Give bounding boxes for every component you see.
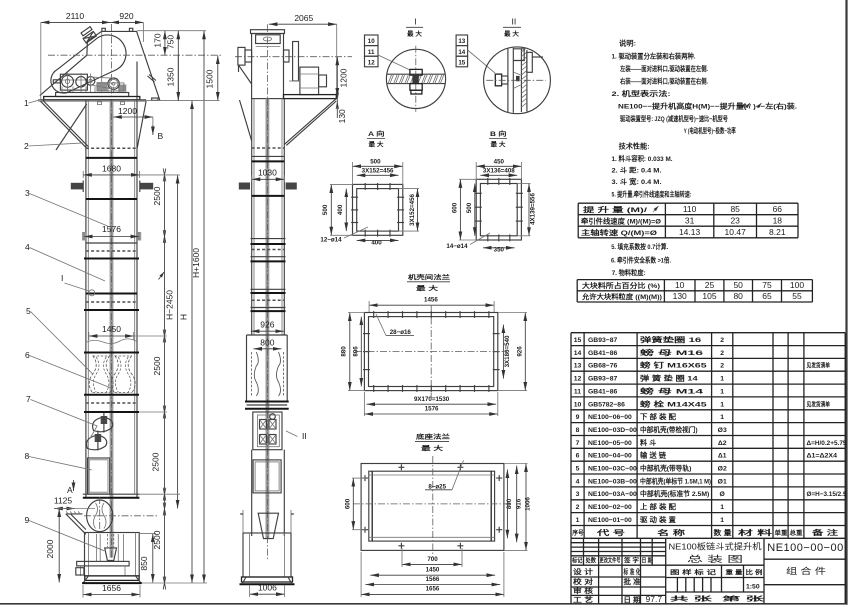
svg-text:12−ø14: 12−ø14 [320, 237, 342, 244]
svg-text:中部机壳(带导轨): 中部机壳(带导轨) [640, 464, 691, 473]
svg-text:3X180=540: 3X180=540 [504, 335, 511, 367]
svg-text:7: 7 [576, 440, 580, 447]
svg-text:名 称: 名 称 [657, 528, 685, 537]
svg-text:校 对: 校 对 [573, 577, 593, 586]
svg-text:500: 500 [322, 204, 329, 215]
svg-text:Δ2: Δ2 [718, 440, 727, 447]
svg-text:见发货清单: 见发货清单 [807, 362, 831, 370]
svg-text:28−ø16: 28−ø16 [390, 329, 412, 336]
svg-text:10: 10 [368, 38, 375, 45]
svg-text:GB93−87: GB93−87 [588, 376, 618, 383]
svg-text:单重: 单重 [775, 529, 789, 537]
svg-text:螃 母 M16: 螃 母 M16 [640, 348, 703, 357]
svg-text:NE100−04−00: NE100−04−00 [588, 453, 632, 460]
svg-text:1576: 1576 [102, 224, 121, 234]
svg-text:2500: 2500 [152, 186, 162, 205]
svg-text:1: 1 [720, 504, 724, 511]
svg-text:3X152=456: 3X152=456 [362, 167, 394, 174]
svg-text:上 部 装 配: 上 部 装 配 [640, 502, 676, 511]
svg-text:牵引件线速度 (M)/(M)=Ø: 牵引件线速度 (M)/(M)=Ø [581, 216, 661, 225]
svg-text:见发货清单: 见发货清单 [807, 400, 831, 408]
svg-text:大块料所占百分比 (%): 大块料所占百分比 (%) [582, 281, 660, 290]
svg-text:1: 1 [576, 517, 580, 524]
svg-text:中部机壳(单标节 1.5M,1 M): 中部机壳(单标节 1.5M,1 M) [640, 476, 711, 485]
svg-text:Ø: Ø [720, 491, 725, 498]
svg-text:5: 5 [26, 306, 31, 316]
svg-text:1656: 1656 [102, 583, 121, 593]
svg-text:料 斗: 料 斗 [640, 438, 656, 447]
svg-text:标记: 标记 [571, 556, 583, 564]
svg-text:B 向: B 向 [490, 130, 507, 138]
svg-text:85: 85 [730, 204, 740, 214]
svg-text:更改文件号: 更改文件号 [600, 556, 621, 564]
svg-text:2500: 2500 [151, 452, 161, 471]
svg-text:Δ1=Δ2X4: Δ1=Δ2X4 [807, 453, 838, 460]
svg-text:2500: 2500 [152, 356, 162, 375]
svg-text:A: A [67, 485, 73, 495]
svg-text:6: 6 [576, 453, 580, 460]
svg-text:材 料: 材 料 [738, 528, 772, 537]
svg-text:Y (电动机型号)−极数−功率: Y (电动机型号)−极数−功率 [684, 126, 736, 135]
svg-text:螃 母 M14: 螃 母 M14 [640, 386, 703, 395]
svg-text:II: II [302, 431, 307, 441]
svg-text:2000: 2000 [45, 539, 55, 558]
svg-text:4: 4 [25, 242, 30, 252]
svg-text:14: 14 [574, 350, 582, 357]
svg-text:8.21: 8.21 [769, 227, 786, 237]
svg-text:中部机壳(标准节 2.5M): 中部机壳(标准节 2.5M) [640, 489, 709, 498]
svg-text:13: 13 [458, 38, 465, 45]
svg-text:GB41−86: GB41−86 [588, 388, 618, 395]
svg-text:1:50: 1:50 [746, 584, 760, 591]
svg-text:日 期: 日 期 [624, 595, 641, 604]
svg-text:工 艺: 工 艺 [573, 595, 593, 604]
svg-text:80: 80 [733, 291, 743, 301]
svg-text:NE100−00−00: NE100−00−00 [767, 542, 843, 554]
svg-text:图 样 标 记: 图 样 标 记 [670, 568, 717, 576]
svg-text:15: 15 [574, 337, 582, 344]
svg-text:2: 2 [576, 504, 580, 511]
svg-text:1450: 1450 [426, 567, 440, 574]
svg-text:H: H [179, 314, 189, 320]
svg-text:1: 1 [720, 388, 724, 395]
svg-text:2500: 2500 [152, 530, 162, 549]
svg-text:110: 110 [683, 204, 697, 214]
svg-text:II: II [512, 17, 517, 27]
svg-text:1. 料斗容积: 0.033 M.: 1. 料斗容积: 0.033 M. [612, 154, 673, 163]
svg-text:H+1600: H+1600 [191, 248, 201, 278]
svg-text:最 大: 最 大 [369, 141, 385, 149]
svg-text:Δ1: Δ1 [718, 453, 727, 460]
svg-text:1456: 1456 [424, 297, 438, 304]
svg-text:主轴转速 Q/(M)=Ø: 主轴转速 Q/(M)=Ø [581, 228, 657, 237]
svg-text:机壳间法兰: 机壳间法兰 [408, 274, 450, 282]
svg-text:螃 钉 M16X65: 螃 钉 M16X65 [640, 361, 707, 370]
svg-text:1500: 1500 [205, 69, 215, 88]
svg-text:750: 750 [166, 35, 176, 49]
svg-text:700: 700 [427, 556, 438, 563]
svg-text:最 大: 最 大 [407, 30, 423, 38]
svg-text:数 量: 数 量 [714, 528, 732, 537]
svg-text:Ø3: Ø3 [718, 427, 727, 434]
svg-text:标 准 化: 标 准 化 [623, 567, 641, 576]
svg-text:Ø2: Ø2 [718, 466, 727, 473]
svg-text:3X152=456: 3X152=456 [409, 193, 416, 225]
svg-text:11: 11 [574, 388, 581, 395]
svg-text:130: 130 [673, 291, 687, 301]
svg-text:1200: 1200 [118, 106, 137, 116]
svg-text:组 合 件: 组 合 件 [786, 566, 827, 576]
svg-text:NE100−03A−00: NE100−03A−00 [588, 491, 637, 498]
svg-text:170: 170 [153, 33, 163, 47]
svg-text:GB93−87: GB93−87 [588, 337, 618, 344]
svg-text:23: 23 [730, 215, 740, 225]
svg-text:右装——面对进料口,驱动装置在右侧.: 右装——面对进料口,驱动装置在右侧. [619, 77, 708, 86]
svg-text:50: 50 [733, 280, 743, 290]
svg-text:1030: 1030 [258, 168, 277, 178]
svg-text:2065: 2065 [294, 13, 313, 23]
svg-text:日 期: 日 期 [642, 556, 653, 564]
svg-text:底座法兰: 底座法兰 [416, 433, 450, 441]
svg-text:NE100−01−00: NE100−01−00 [588, 517, 632, 524]
svg-text:7. 物料粒度:: 7. 物料粒度: [612, 268, 646, 277]
svg-text:说明:: 说明: [619, 39, 636, 48]
svg-text:Δ=H/0.2+5.75: Δ=H/0.2+5.75 [807, 440, 848, 447]
svg-text:NE100−02−00: NE100−02−00 [588, 504, 632, 511]
svg-text:31: 31 [685, 215, 695, 225]
svg-text:审 核: 审 核 [573, 586, 593, 595]
svg-text:1006: 1006 [258, 583, 277, 593]
svg-text:4: 4 [576, 478, 580, 485]
svg-text:设 计: 设 计 [573, 567, 593, 576]
svg-text:序号: 序号 [571, 529, 583, 537]
svg-text:1576: 1576 [425, 406, 439, 413]
svg-text:重 量: 重 量 [726, 568, 744, 576]
svg-text:最 大: 最 大 [491, 141, 507, 149]
svg-text:1: 1 [24, 98, 29, 108]
svg-text:总 装 图: 总 装 图 [687, 554, 743, 564]
svg-text:12: 12 [368, 59, 375, 66]
svg-text:2: 2 [720, 337, 724, 344]
svg-text:9X170=1530: 9X170=1530 [414, 396, 450, 403]
svg-text:弹 簧 垫 圈 14: 弹 簧 垫 圈 14 [640, 374, 698, 383]
svg-text:最 大: 最 大 [504, 30, 520, 38]
svg-text:I: I [414, 17, 416, 27]
svg-text:A 向: A 向 [368, 130, 385, 138]
svg-text:I: I [61, 273, 63, 283]
svg-text:850: 850 [139, 556, 149, 570]
svg-text:97.7: 97.7 [646, 594, 663, 604]
svg-text:130: 130 [337, 109, 347, 123]
svg-text:1450: 1450 [102, 324, 121, 334]
svg-text:105: 105 [702, 291, 716, 301]
svg-text:3: 3 [576, 491, 580, 498]
svg-text:中部机壳(带检视门): 中部机壳(带检视门) [640, 425, 698, 434]
svg-text:14: 14 [458, 49, 465, 56]
svg-text:920: 920 [119, 11, 133, 21]
svg-text:5. 提升量,牵引件线速度和主轴转速:: 5. 提升量,牵引件线速度和主轴转速: [612, 190, 692, 199]
svg-text:GB41−86: GB41−86 [588, 350, 618, 357]
svg-text:66: 66 [773, 204, 783, 214]
svg-text:9: 9 [576, 414, 580, 421]
svg-text:5: 5 [576, 466, 580, 473]
svg-text:800: 800 [260, 337, 274, 347]
svg-text:处数: 处数 [585, 556, 597, 564]
svg-text:9: 9 [25, 515, 30, 525]
svg-text:3X136=408: 3X136=408 [483, 167, 515, 174]
svg-text:13: 13 [574, 363, 582, 370]
svg-text:技术性能:: 技术性能: [619, 142, 650, 151]
svg-text:600: 600 [452, 202, 459, 213]
svg-text:55: 55 [792, 291, 802, 301]
svg-text:驱 动 装 置: 驱 动 装 置 [640, 515, 676, 524]
svg-text:1350: 1350 [166, 67, 176, 86]
svg-text:最 大: 最 大 [421, 444, 444, 452]
svg-text:Ø1: Ø1 [718, 478, 727, 485]
svg-text:NE100−−提升机高度H(M)−−提升量( /: NE100−−提升机高度H(M)−−提升量( / )−−左(右)装. [618, 102, 797, 111]
svg-text:比 例: 比 例 [746, 568, 763, 576]
svg-text:65: 65 [762, 291, 772, 301]
svg-text:1: 1 [720, 414, 724, 421]
svg-text:1566: 1566 [426, 576, 440, 583]
svg-text:弹簧垫圈 16: 弹簧垫圈 16 [640, 335, 702, 344]
svg-text:NE100板链斗式提升机: NE100板链斗式提升机 [669, 542, 763, 552]
svg-text:2. 机型表示法:: 2. 机型表示法: [612, 89, 671, 98]
svg-text:2: 2 [24, 141, 29, 151]
svg-text:500: 500 [466, 202, 473, 213]
svg-text:3. 斗 宽: 0.4 M.: 3. 斗 宽: 0.4 M. [612, 177, 662, 186]
svg-text:500: 500 [370, 158, 381, 165]
svg-text:7: 7 [26, 394, 31, 404]
svg-text:15: 15 [458, 59, 465, 66]
svg-text:H−2450: H−2450 [165, 290, 175, 320]
svg-text:1200: 1200 [339, 68, 349, 87]
svg-text:14.13: 14.13 [679, 227, 701, 237]
svg-text:5. 填充系数按 0.7计算.: 5. 填充系数按 0.7计算. [611, 242, 668, 251]
svg-text:8−ø25: 8−ø25 [428, 483, 446, 490]
svg-text:100: 100 [790, 280, 804, 290]
svg-text:1125: 1125 [54, 496, 73, 506]
svg-text:NE100−03B−00: NE100−03B−00 [588, 478, 637, 485]
svg-text:最 大: 最 大 [416, 285, 439, 293]
svg-text:18: 18 [773, 215, 783, 225]
svg-text:926: 926 [517, 346, 524, 357]
svg-text:880: 880 [341, 346, 348, 357]
svg-text:下 部 装 配: 下 部 装 配 [640, 412, 676, 421]
svg-text:1: 1 [720, 517, 724, 524]
svg-text:共 张: 共 张 [670, 595, 714, 603]
svg-text:2110: 2110 [66, 11, 85, 21]
svg-text:提 升 量 (M)/: 提 升 量 (M)/ [581, 205, 647, 214]
svg-text:驱动装置型号: JZQ (减速机型号)−速比−机型号: 驱动装置型号: JZQ (减速机型号)−速比−机型号 [620, 114, 728, 123]
svg-text:2: 2 [720, 363, 724, 370]
svg-text:GB68−76: GB68−76 [588, 363, 618, 370]
svg-text:25: 25 [705, 280, 715, 290]
svg-text:备 注: 备 注 [810, 528, 838, 537]
svg-text:1. 驱动装置分左装和右装两种.: 1. 驱动装置分左装和右装两种. [612, 52, 696, 61]
svg-text:签 字: 签 字 [623, 556, 639, 564]
svg-text:总重: 总重 [790, 529, 804, 537]
svg-text:NE100−06−00: NE100−06−00 [588, 414, 632, 421]
svg-text:Ø=H−3.15/2.5: Ø=H−3.15/2.5 [807, 491, 848, 498]
svg-text:1: 1 [720, 401, 724, 408]
svg-text:输 送 链: 输 送 链 [640, 451, 666, 460]
svg-text:10: 10 [675, 280, 685, 290]
svg-text:2: 2 [720, 350, 724, 357]
svg-text:GB5782−86: GB5782−86 [588, 401, 625, 408]
svg-text:批 准: 批 准 [624, 577, 641, 586]
svg-text:8: 8 [576, 427, 580, 434]
svg-text:4X139=556: 4X139=556 [529, 193, 536, 225]
svg-text:NE100−05−00: NE100−05−00 [588, 440, 632, 447]
svg-text:3: 3 [25, 188, 30, 198]
svg-text:14−ø14: 14−ø14 [446, 243, 468, 250]
svg-text:75: 75 [762, 280, 772, 290]
svg-text:6: 6 [25, 350, 30, 360]
svg-text:NE100−03D−00: NE100−03D−00 [588, 427, 637, 434]
svg-text:第 张: 第 张 [719, 595, 766, 603]
svg-text:6. 牵引件安全系数 >1倍.: 6. 牵引件安全系数 >1倍. [611, 255, 671, 264]
svg-text:2. 斗 距: 0.4 M.: 2. 斗 距: 0.4 M. [612, 166, 662, 175]
svg-text:8: 8 [25, 451, 30, 461]
svg-text:螃 栓 M14X45: 螃 栓 M14X45 [640, 399, 707, 408]
svg-text:10: 10 [574, 401, 582, 408]
svg-text:11: 11 [368, 49, 375, 56]
svg-text:600: 600 [345, 498, 352, 509]
svg-text:806: 806 [353, 346, 360, 357]
svg-text:左装——面对进料口,驱动装置在左侧.: 左装——面对进料口,驱动装置在左侧. [619, 64, 708, 73]
svg-text:NE100−03C−00: NE100−03C−00 [588, 466, 637, 473]
svg-text:400: 400 [337, 204, 344, 215]
svg-text:B: B [158, 131, 164, 141]
svg-text:12: 12 [574, 376, 582, 383]
svg-text:代 号: 代 号 [595, 528, 625, 537]
svg-text:允许大块料粒度 ((M)(M)): 允许大块料粒度 ((M)(M)) [581, 292, 662, 301]
svg-text:926: 926 [260, 320, 274, 330]
svg-text:450: 450 [494, 158, 505, 165]
svg-text:1656: 1656 [426, 586, 440, 593]
svg-text:1680: 1680 [102, 164, 121, 174]
svg-text:1: 1 [720, 376, 724, 383]
svg-text:10.47: 10.47 [725, 227, 747, 237]
